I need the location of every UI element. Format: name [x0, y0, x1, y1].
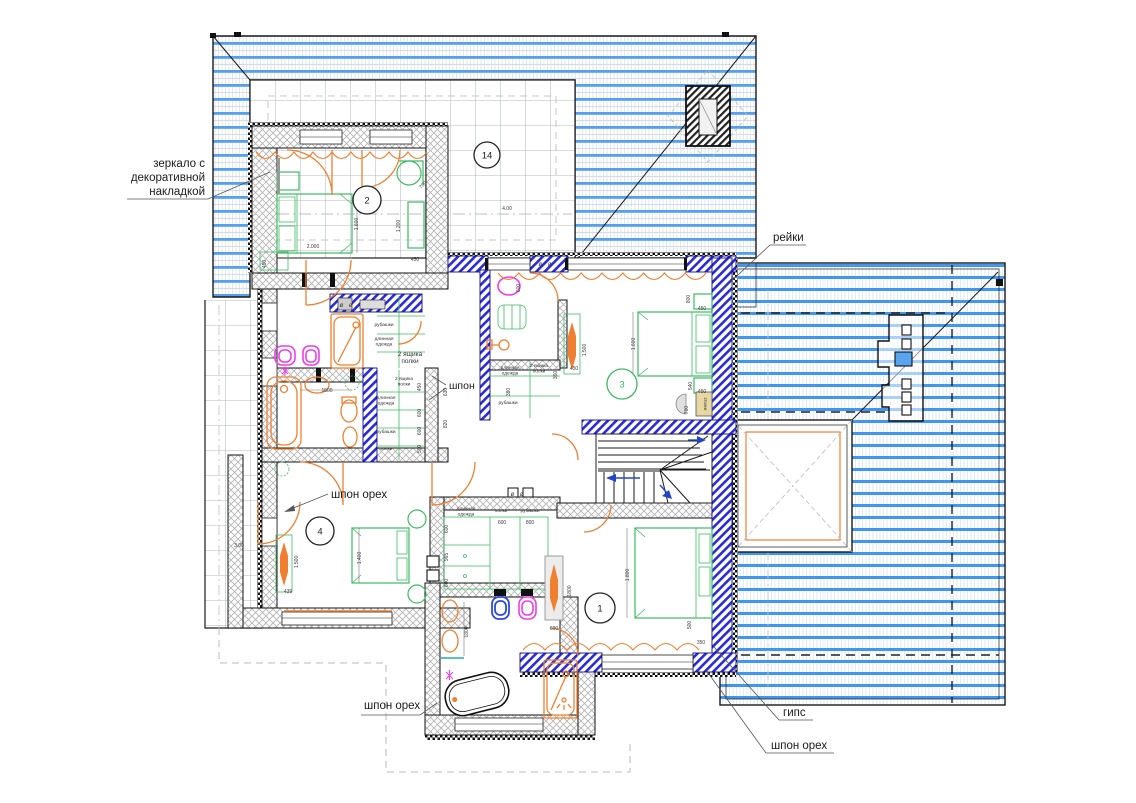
bed-room1 [635, 528, 712, 618]
nightstand-room4-top [408, 510, 426, 528]
mirror-note-line3: накладкой [149, 186, 205, 198]
dimension-label: 439 [284, 589, 293, 595]
dimension-label: 600 [498, 520, 507, 526]
nightstand-room4-bottom [408, 585, 426, 603]
dimension-label: 1800 [567, 585, 573, 596]
dimension-label: 350 [697, 640, 706, 646]
room-marker-number: 14 [482, 151, 493, 162]
shower-mid [331, 314, 363, 368]
staircase[interactable] [596, 434, 712, 503]
bidet-mid [343, 427, 357, 447]
dimension-label: 450 [262, 260, 268, 269]
toilet-bottom-blue [492, 597, 509, 619]
bathtub-bottom [442, 669, 513, 719]
closet-label: 2 ящикаполки [398, 351, 423, 365]
vent-diameter-symbol: ø ø [511, 492, 526, 498]
closet-label: длиннаяодежда [377, 396, 396, 406]
terrace-14 [250, 80, 575, 258]
vent-diameter-symbol: ø ø [340, 303, 355, 309]
dimension-label: 2.000 [307, 244, 320, 250]
dimension-label: 1500 [321, 388, 332, 394]
dimension-label: 350 [553, 371, 559, 380]
dimension-label: 1.500 [294, 556, 300, 569]
dimension-label: 450 [411, 257, 420, 263]
dimension-label: 1.600 [631, 338, 637, 351]
room-marker-number: 4 [317, 527, 322, 538]
dimension-label: 450 [570, 366, 579, 372]
dimension-label: 630 [443, 388, 449, 397]
gips-label: гипс [783, 707, 806, 719]
dimension-label: 800 [526, 520, 535, 526]
floorplan-svg: зеркало с декоративной накладкой рейки ш… [0, 0, 1136, 803]
dimension-label: 4.00 [502, 206, 512, 212]
closet-label: длиннаяодежда [375, 337, 394, 347]
dimension-label: 500 [687, 621, 693, 630]
shpon-label: шпон [449, 380, 475, 392]
closet-label: полки [495, 509, 508, 514]
curtain-room3 [498, 273, 706, 280]
dimension-label: 820 [443, 420, 449, 429]
closet-label: столик [703, 398, 708, 411]
dimension-label: 450 [417, 383, 423, 392]
dimension-label: 1.800 [625, 569, 631, 582]
closet-label: рубашки [521, 508, 540, 514]
dimension-label: 700 [684, 406, 690, 415]
closet-label: длиннаяодежда [457, 507, 476, 517]
closet-label: длиннаяодежда [501, 366, 520, 376]
dimension-label: 1.500 [582, 344, 588, 357]
mirror-room2 [277, 158, 280, 194]
dimension-label: 3.00 [234, 543, 244, 549]
dimension-label: 600 [417, 427, 423, 436]
shpon-oreh-right-label: шпон орех [771, 740, 827, 752]
mirror-note-line2: декоративной [131, 172, 205, 184]
dimension-label: 540 [688, 382, 694, 391]
mirror-note-line1: зеркало с [153, 158, 205, 170]
dimension-label: 1.200 [396, 220, 402, 233]
shpon-oreh-bottom-label: шпон орех [364, 700, 420, 712]
closet-label: 2 ящикаполки [530, 363, 548, 374]
radiator-room4 [276, 535, 292, 592]
toilet-mid [341, 397, 357, 422]
roof-skylight [733, 420, 852, 552]
faucet-mark [446, 670, 453, 680]
shpon-oreh-room4-label: шпон орех [331, 489, 387, 501]
dimension-label: 600 [516, 284, 522, 293]
dimension-label: 600 [550, 626, 559, 632]
bed-room3 [638, 312, 712, 376]
dimension-label: 380 [506, 388, 512, 397]
dimension-label: 450 [698, 306, 707, 312]
door-room3 [552, 434, 578, 460]
dimension-label: 450 [698, 389, 707, 395]
bidet-bottom-magenta [519, 597, 536, 619]
dimension-label: 600 [417, 409, 423, 418]
door-ensuite-room3 [530, 273, 558, 301]
radiator-room1 [545, 556, 563, 620]
closet-label: рубашки [377, 429, 396, 435]
dimension-label: 1800 [464, 626, 470, 637]
chair-room3 [498, 305, 526, 329]
floorplan-canvas: зеркало с декоративной накладкой рейки ш… [0, 0, 1136, 803]
dimension-label: 1.600 [354, 218, 360, 231]
roof-right [720, 263, 1005, 705]
room-marker-number: 2 [364, 196, 369, 207]
curtain-room1 [523, 644, 699, 651]
closet-label: полки [380, 447, 393, 452]
door-closet-corridor [398, 321, 421, 344]
dimension-label: 600 [444, 525, 450, 534]
room-marker-number: 3 [619, 380, 624, 391]
dimension-label: 800 [686, 295, 692, 304]
closet-shelves-room1 [444, 517, 548, 589]
closet-label: 2 ящикаполки [395, 376, 413, 387]
dimension-label: 500 [417, 445, 423, 454]
dimension-label: 600 [444, 579, 450, 588]
dimension-label: 965 [444, 553, 450, 562]
closet-label: рубашки [499, 400, 518, 406]
closet-label: рубашки [375, 322, 394, 328]
room-marker-number: 1 [597, 604, 602, 615]
dimension-label: 1.400 [357, 552, 363, 565]
vent-diameter-symbol: ø ø [539, 262, 554, 268]
reiki-label: рейки [773, 232, 804, 244]
